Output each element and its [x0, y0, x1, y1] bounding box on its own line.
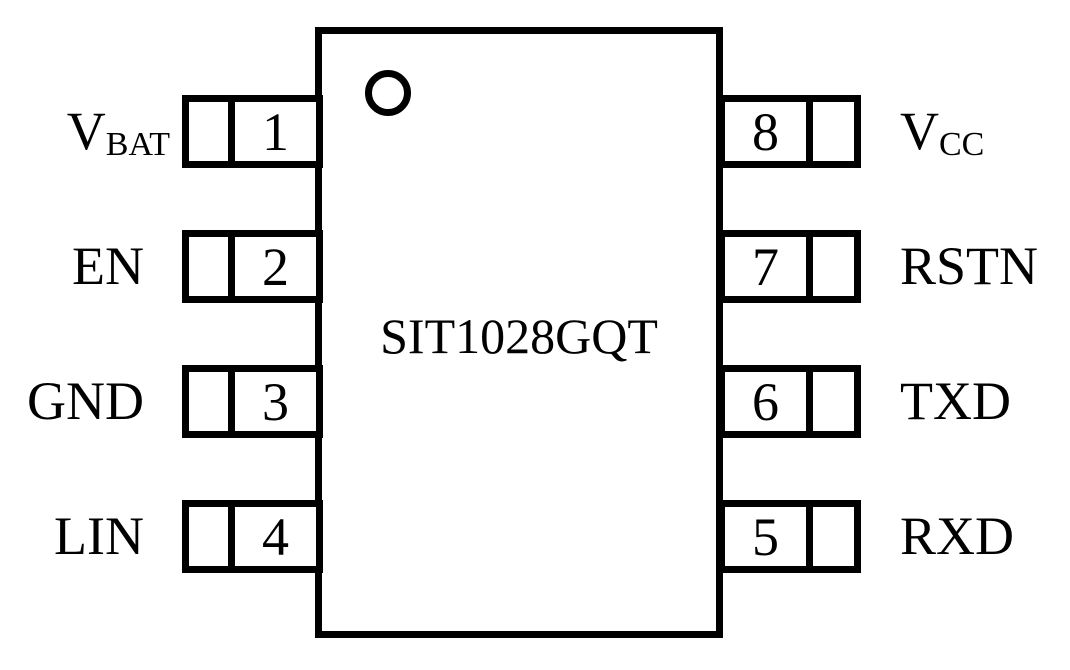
pin-box-5: 5 — [718, 500, 861, 573]
pin-label-subscript: BAT — [106, 126, 170, 163]
pin-divider — [806, 372, 813, 431]
pin-number-8: 8 — [725, 102, 806, 161]
pin-number-3: 3 — [235, 372, 316, 431]
pin-box-2: 2 — [182, 230, 323, 303]
chip-part-number: SIT1028GQT — [322, 308, 716, 364]
pin-divider — [228, 507, 235, 566]
pin-label-text: TXD — [900, 371, 1011, 431]
pin-divider — [228, 372, 235, 431]
pin-label-subscript: CC — [939, 126, 984, 163]
pin-label-text: GND — [27, 371, 144, 431]
pin-divider — [806, 237, 813, 296]
pin-label-vcc: VCC — [900, 95, 1068, 168]
pin-box-1: 1 — [182, 95, 323, 168]
chip-body: SIT1028GQT — [315, 27, 723, 638]
pin-number-1: 1 — [235, 102, 316, 161]
pin-divider — [228, 237, 235, 296]
pin-divider — [806, 507, 813, 566]
pin-label-text: LIN — [54, 506, 144, 566]
pin-label-txd: TXD — [900, 365, 1068, 438]
pin-box-7: 7 — [718, 230, 861, 303]
pin-label-en: EN — [0, 230, 170, 303]
pin-label-text: RSTN — [900, 236, 1038, 296]
pin-box-3: 3 — [182, 365, 323, 438]
pin-box-8: 8 — [718, 95, 861, 168]
pin-label-text: EN — [72, 236, 144, 296]
pin-number-5: 5 — [725, 507, 806, 566]
pin-number-2: 2 — [235, 237, 316, 296]
pin-box-6: 6 — [718, 365, 861, 438]
pin-box-4: 4 — [182, 500, 323, 573]
pin-label-rstn: RSTN — [900, 230, 1068, 303]
pin-label-text: V — [67, 101, 106, 161]
pin-label-text: V — [900, 101, 939, 161]
pin-label-rxd: RXD — [900, 500, 1068, 573]
pin1-indicator-icon — [365, 70, 411, 116]
pin-number-4: 4 — [235, 507, 316, 566]
pin-number-6: 6 — [725, 372, 806, 431]
pin-label-vbat: VBAT — [0, 95, 170, 168]
pin-number-7: 7 — [725, 237, 806, 296]
pin-divider — [806, 102, 813, 161]
pin-divider — [228, 102, 235, 161]
pin-label-gnd: GND — [0, 365, 170, 438]
pin-label-lin: LIN — [0, 500, 170, 573]
pin-label-text: RXD — [900, 506, 1014, 566]
